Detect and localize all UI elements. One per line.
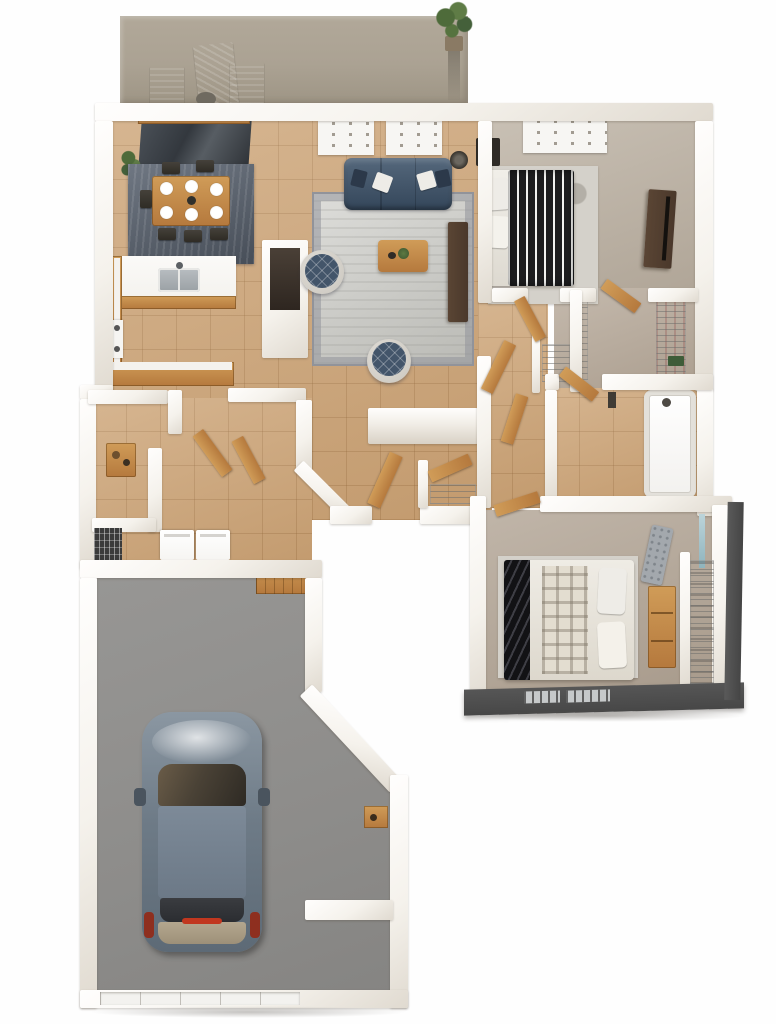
potted-plant-icon xyxy=(433,0,475,44)
floor-lamp-icon xyxy=(450,151,468,169)
garage-wall-right-lower xyxy=(390,775,408,1008)
master-bed xyxy=(482,170,574,286)
living-window-right xyxy=(386,121,442,155)
bedroom2-exterior-window xyxy=(524,691,560,704)
car-brake-light xyxy=(182,918,222,924)
dinner-plate xyxy=(185,180,198,193)
deck-chair-right xyxy=(230,62,264,104)
car-trunk xyxy=(158,922,246,944)
dining-chair xyxy=(162,162,180,174)
master-window xyxy=(523,121,607,153)
bath-top-wall-b xyxy=(602,374,713,390)
bedroom2-ground-shadow xyxy=(470,710,746,722)
bedroom2-exterior-wall-east xyxy=(724,502,743,700)
garage-wall-right-upper xyxy=(305,578,322,692)
deck-chair-left xyxy=(150,66,184,106)
coffee-table-plant-icon xyxy=(398,248,409,259)
drying-rack xyxy=(94,528,122,562)
kitchen-hall-wall-a xyxy=(88,390,168,404)
dinner-plate xyxy=(210,183,223,196)
dinner-plate xyxy=(160,206,173,219)
garage-wall-shelf xyxy=(364,806,388,828)
car-windshield xyxy=(158,764,246,806)
bathtub xyxy=(644,390,696,498)
porch-wall-a xyxy=(330,506,372,524)
kitchen-peninsula-cabinet xyxy=(118,296,236,309)
table-centerpiece xyxy=(187,196,196,205)
dining-chair xyxy=(158,228,176,240)
bed2-plaid-blanket xyxy=(542,566,588,674)
dining-chair xyxy=(140,190,152,208)
car-taillight-left xyxy=(144,912,154,938)
bath-top-wall-a xyxy=(545,374,559,390)
hall-closet-wall xyxy=(418,460,428,508)
car-roof xyxy=(158,806,246,898)
dinner-plate xyxy=(185,208,198,221)
bedroom2-exterior-window xyxy=(566,689,610,702)
garage-work-ledge xyxy=(305,900,393,920)
master-duvet-striped xyxy=(508,170,574,286)
dining-chair xyxy=(196,160,214,172)
bedroom2-top-wall xyxy=(540,496,732,512)
dryer xyxy=(196,530,230,560)
kitchen-bottom-counter xyxy=(102,362,234,386)
exterior-wall-right-upper xyxy=(695,121,713,391)
living-master-divider-wall xyxy=(478,121,492,303)
garage-wall-left xyxy=(80,578,97,1008)
car-mirror-right xyxy=(258,788,270,806)
master-south-wall-c xyxy=(648,288,698,302)
driveway-shadow xyxy=(88,1006,408,1018)
living-south-wall xyxy=(368,408,478,444)
bed2-pillow xyxy=(597,621,627,668)
dining-chair xyxy=(210,228,228,240)
master-dresser-tv xyxy=(643,189,676,269)
bedroom2-bed xyxy=(504,560,634,680)
bedroom2-closet-shelf xyxy=(690,560,714,684)
sliding-glass-door xyxy=(138,119,252,170)
garage-door xyxy=(100,992,300,1005)
bath-left-wall xyxy=(545,390,557,502)
shower-head-icon xyxy=(662,398,671,407)
kitchen-sink xyxy=(158,268,200,292)
garage-wall-top xyxy=(80,560,322,578)
kitchen-hall-wall-b xyxy=(168,390,182,434)
bedroom2-dresser xyxy=(648,586,676,668)
closet-storage-bin xyxy=(668,356,684,366)
car-hood-highlight xyxy=(152,720,252,764)
exterior-wall-top xyxy=(95,103,713,121)
bed2-dark-throw xyxy=(504,560,530,680)
bed2-pillow xyxy=(597,567,627,614)
dinner-plate xyxy=(160,182,173,195)
washer xyxy=(160,530,194,560)
floorplan-scene xyxy=(0,0,776,1024)
media-console xyxy=(448,222,468,322)
bedroom2-left-wall xyxy=(470,496,486,706)
exterior-wall-left-upper xyxy=(95,121,113,393)
accent-chair-bottom-cushion xyxy=(372,342,406,376)
car-mirror-left xyxy=(134,788,146,806)
plant-shadow xyxy=(448,44,460,100)
bath-towel xyxy=(608,392,616,408)
living-window-left xyxy=(318,121,374,155)
dinner-plate xyxy=(210,206,223,219)
accent-chair-left-cushion xyxy=(305,254,339,288)
entry-console-table xyxy=(106,443,136,477)
car-taillight-right xyxy=(250,912,260,938)
dining-table xyxy=(152,176,230,226)
pantry-niche xyxy=(270,248,300,310)
coffee-table-tray xyxy=(388,252,396,259)
bedroom2-closet-partition xyxy=(680,552,690,690)
kitchen-faucet-icon xyxy=(176,262,183,269)
dining-chair xyxy=(184,230,202,242)
kitchen-hall-wall-c xyxy=(228,388,306,402)
car xyxy=(142,712,262,952)
